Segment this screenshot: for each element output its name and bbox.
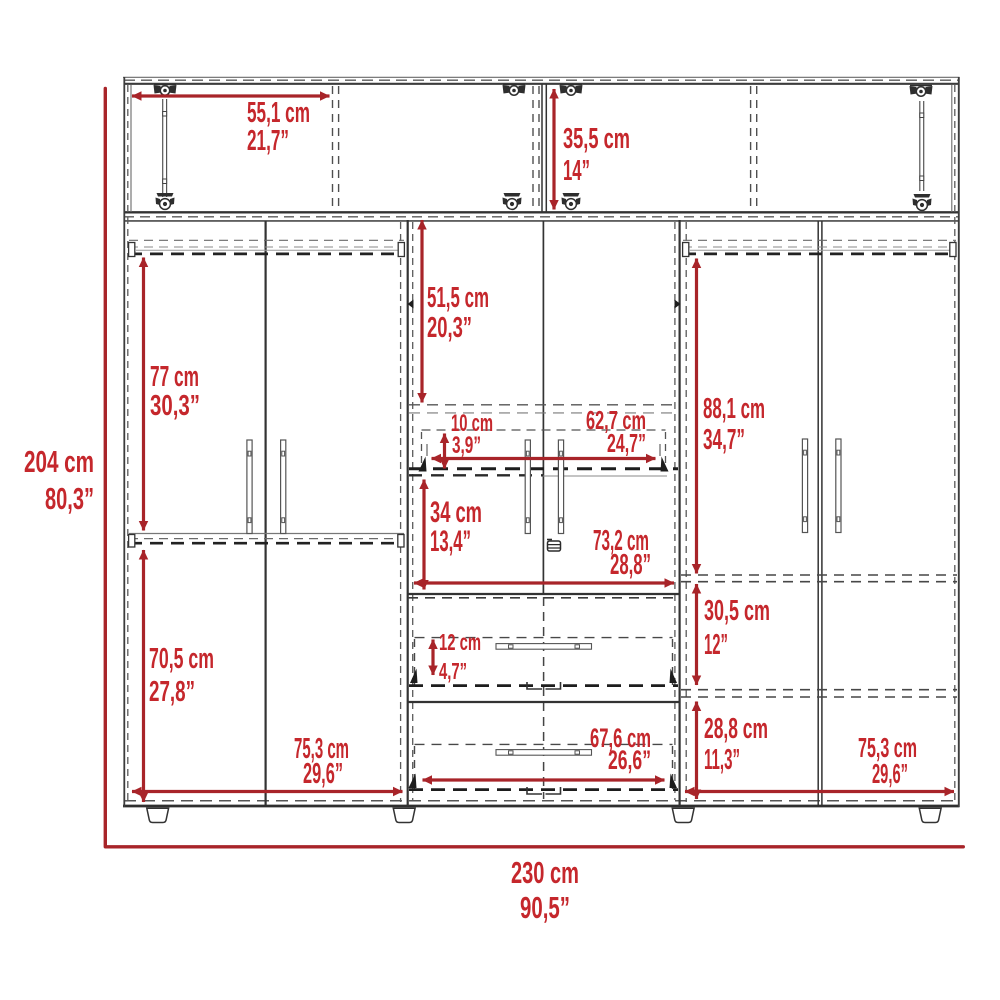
svg-text:29,6”: 29,6” xyxy=(303,758,343,790)
svg-text:13,4”: 13,4” xyxy=(430,525,471,558)
svg-text:14”: 14” xyxy=(563,155,590,187)
svg-text:27,8”: 27,8” xyxy=(149,676,195,708)
svg-text:4,7”: 4,7” xyxy=(439,658,467,684)
svg-text:77 cm: 77 cm xyxy=(150,361,199,393)
svg-text:26,6”: 26,6” xyxy=(608,745,651,775)
svg-text:28,8 cm: 28,8 cm xyxy=(704,713,768,745)
svg-text:24,7”: 24,7” xyxy=(607,428,646,458)
svg-text:34,7”: 34,7” xyxy=(703,424,745,456)
svg-text:3,9”: 3,9” xyxy=(452,432,481,459)
svg-text:20,3”: 20,3” xyxy=(427,312,472,344)
svg-text:30,3”: 30,3” xyxy=(150,390,200,422)
svg-text:29,6”: 29,6” xyxy=(872,758,908,789)
svg-text:35,5 cm: 35,5 cm xyxy=(563,123,630,155)
svg-text:28,8”: 28,8” xyxy=(610,549,651,581)
svg-text:80,3”: 80,3” xyxy=(45,481,94,516)
svg-text:21,7”: 21,7” xyxy=(247,125,289,157)
svg-text:204 cm: 204 cm xyxy=(24,444,94,479)
svg-text:12”: 12” xyxy=(704,629,728,661)
svg-text:70,5 cm: 70,5 cm xyxy=(149,643,214,675)
svg-text:30,5 cm: 30,5 cm xyxy=(704,595,770,627)
svg-text:12 cm: 12 cm xyxy=(439,629,481,655)
svg-text:11,3”: 11,3” xyxy=(704,744,740,776)
svg-text:230 cm: 230 cm xyxy=(511,855,579,890)
svg-text:90,5”: 90,5” xyxy=(520,890,570,925)
svg-text:88,1 cm: 88,1 cm xyxy=(703,393,765,425)
svg-text:51,5 cm: 51,5 cm xyxy=(427,282,489,314)
